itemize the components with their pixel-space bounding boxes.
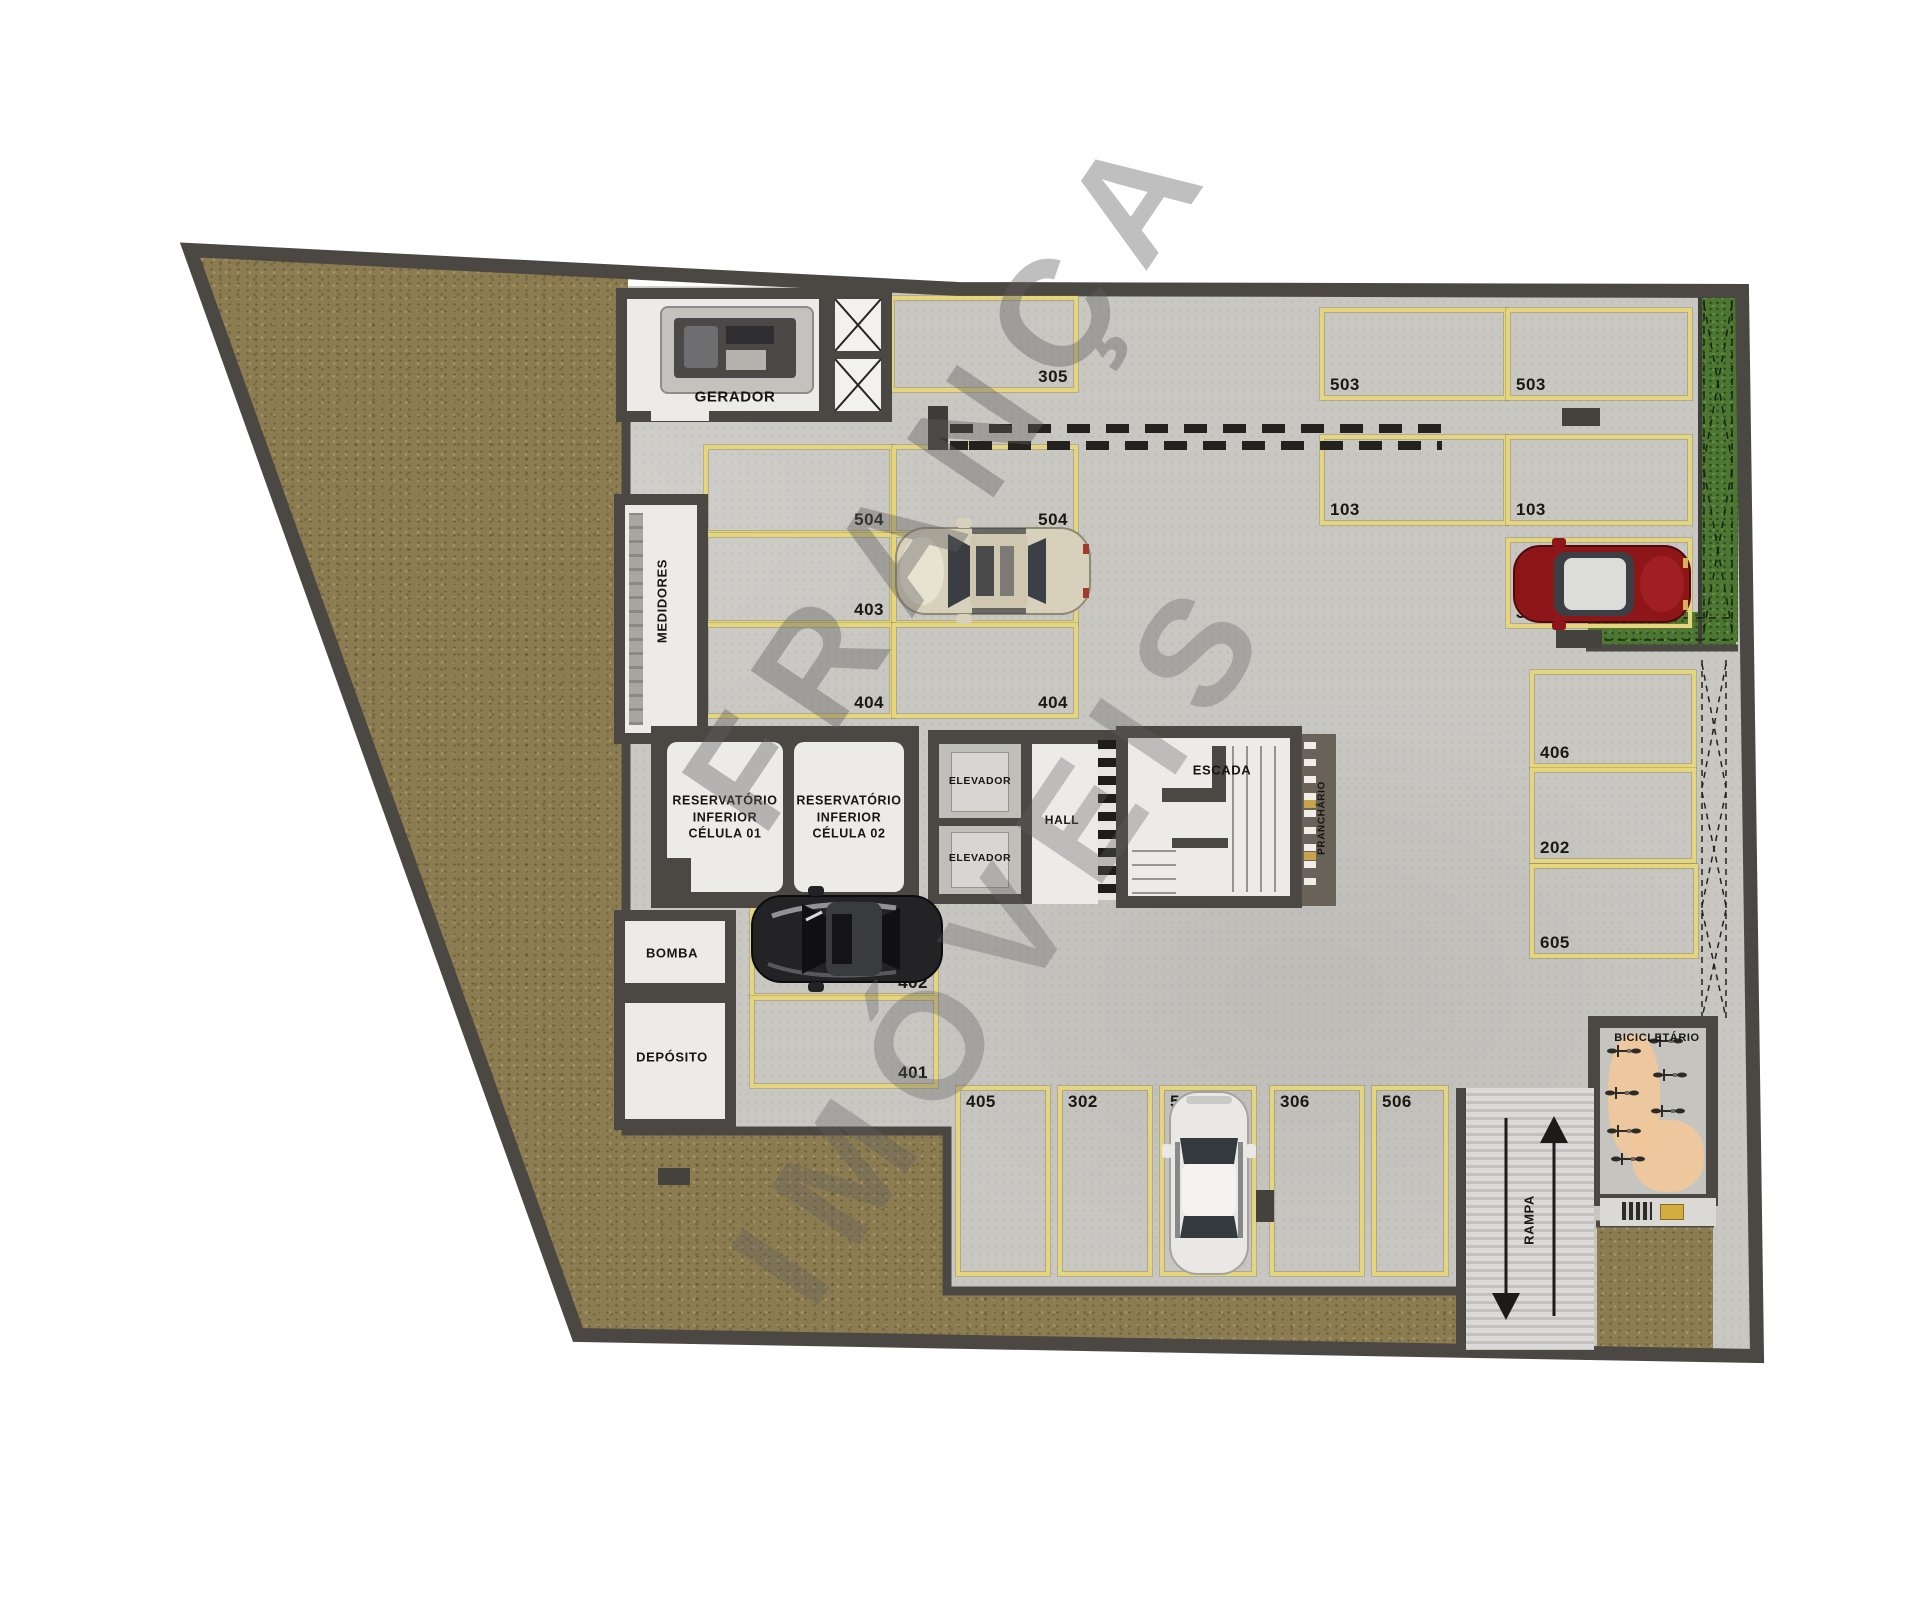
- parking-spot-number: 302: [1068, 1092, 1098, 1112]
- ventilation-shaft-block: [826, 288, 892, 422]
- parking-spot-number: 503: [1516, 375, 1546, 395]
- surfboard-rack-label: PRANCHÁRIO: [1317, 781, 1328, 855]
- parking-spot-number: 103: [1516, 500, 1546, 520]
- drain-channel-hatch: [1702, 660, 1726, 1020]
- ramp-down-arrow-icon: [1492, 1293, 1520, 1320]
- parking-spot-number: 202: [1540, 838, 1570, 858]
- bicycle-icon: [1606, 1124, 1642, 1143]
- bicycle-icon: [1606, 1044, 1642, 1063]
- wall-object: [1562, 408, 1600, 426]
- equipment-unit: [1622, 1202, 1652, 1220]
- bike-room-label: BICICLETÁRIO: [1614, 1032, 1699, 1044]
- bicycle-icon: [1650, 1104, 1686, 1123]
- car-white-top-view: [1162, 1086, 1256, 1283]
- parking-spot-number: 306: [1280, 1092, 1310, 1112]
- generator-machine: [660, 306, 814, 394]
- parking-spot-number: 406: [1540, 743, 1570, 763]
- ramp-up-arrow-icon: [1540, 1116, 1568, 1143]
- generator-door-gap: [651, 409, 709, 421]
- parking-spot-406: 406: [1530, 670, 1696, 768]
- shaft-x-icon: [835, 359, 881, 411]
- parking-spot-number: 103: [1330, 500, 1360, 520]
- shaft-x-icon: [835, 299, 881, 351]
- parking-spot-302: 302: [1058, 1086, 1152, 1276]
- garage-floor-plan: 305 503 503 103 103 301 406 202 605 504 …: [0, 0, 1920, 1599]
- terrain-marker: [658, 1168, 690, 1185]
- meters-label: MEDIDORES: [655, 559, 670, 643]
- parking-spot-202: 202: [1530, 768, 1696, 863]
- pump-label: BOMBA: [646, 946, 698, 961]
- parking-spot-number: 506: [1382, 1092, 1412, 1112]
- parking-spot-503-left: 503: [1320, 308, 1508, 400]
- bicycle-icon: [1604, 1086, 1640, 1105]
- bicycle-icon: [1652, 1068, 1688, 1087]
- column: [1256, 1190, 1274, 1222]
- meter-bank: [629, 513, 643, 725]
- bicycle-icon: [1610, 1152, 1646, 1171]
- stair-wall: [1172, 838, 1228, 848]
- equipment-box: [1660, 1204, 1684, 1220]
- parking-spot-605: 605: [1530, 864, 1698, 958]
- reservoir-wall-notch: [667, 858, 691, 892]
- parking-spot-number: 605: [1540, 933, 1570, 953]
- car-red-top-view: [1510, 538, 1694, 635]
- parking-spot-306: 306: [1270, 1086, 1364, 1276]
- parking-spot-503-right: 503: [1506, 308, 1692, 400]
- parking-spot-number: 503: [1330, 375, 1360, 395]
- equipment-strip: [1600, 1198, 1716, 1226]
- parking-spot-506: 506: [1372, 1086, 1448, 1276]
- ramp-label: RAMPA: [1522, 1195, 1537, 1245]
- parking-spot-103-right: 103: [1506, 435, 1692, 525]
- surfboards: [1304, 742, 1316, 894]
- storage-label: DEPÓSITO: [636, 1050, 708, 1065]
- generator-label: GERADOR: [695, 389, 776, 406]
